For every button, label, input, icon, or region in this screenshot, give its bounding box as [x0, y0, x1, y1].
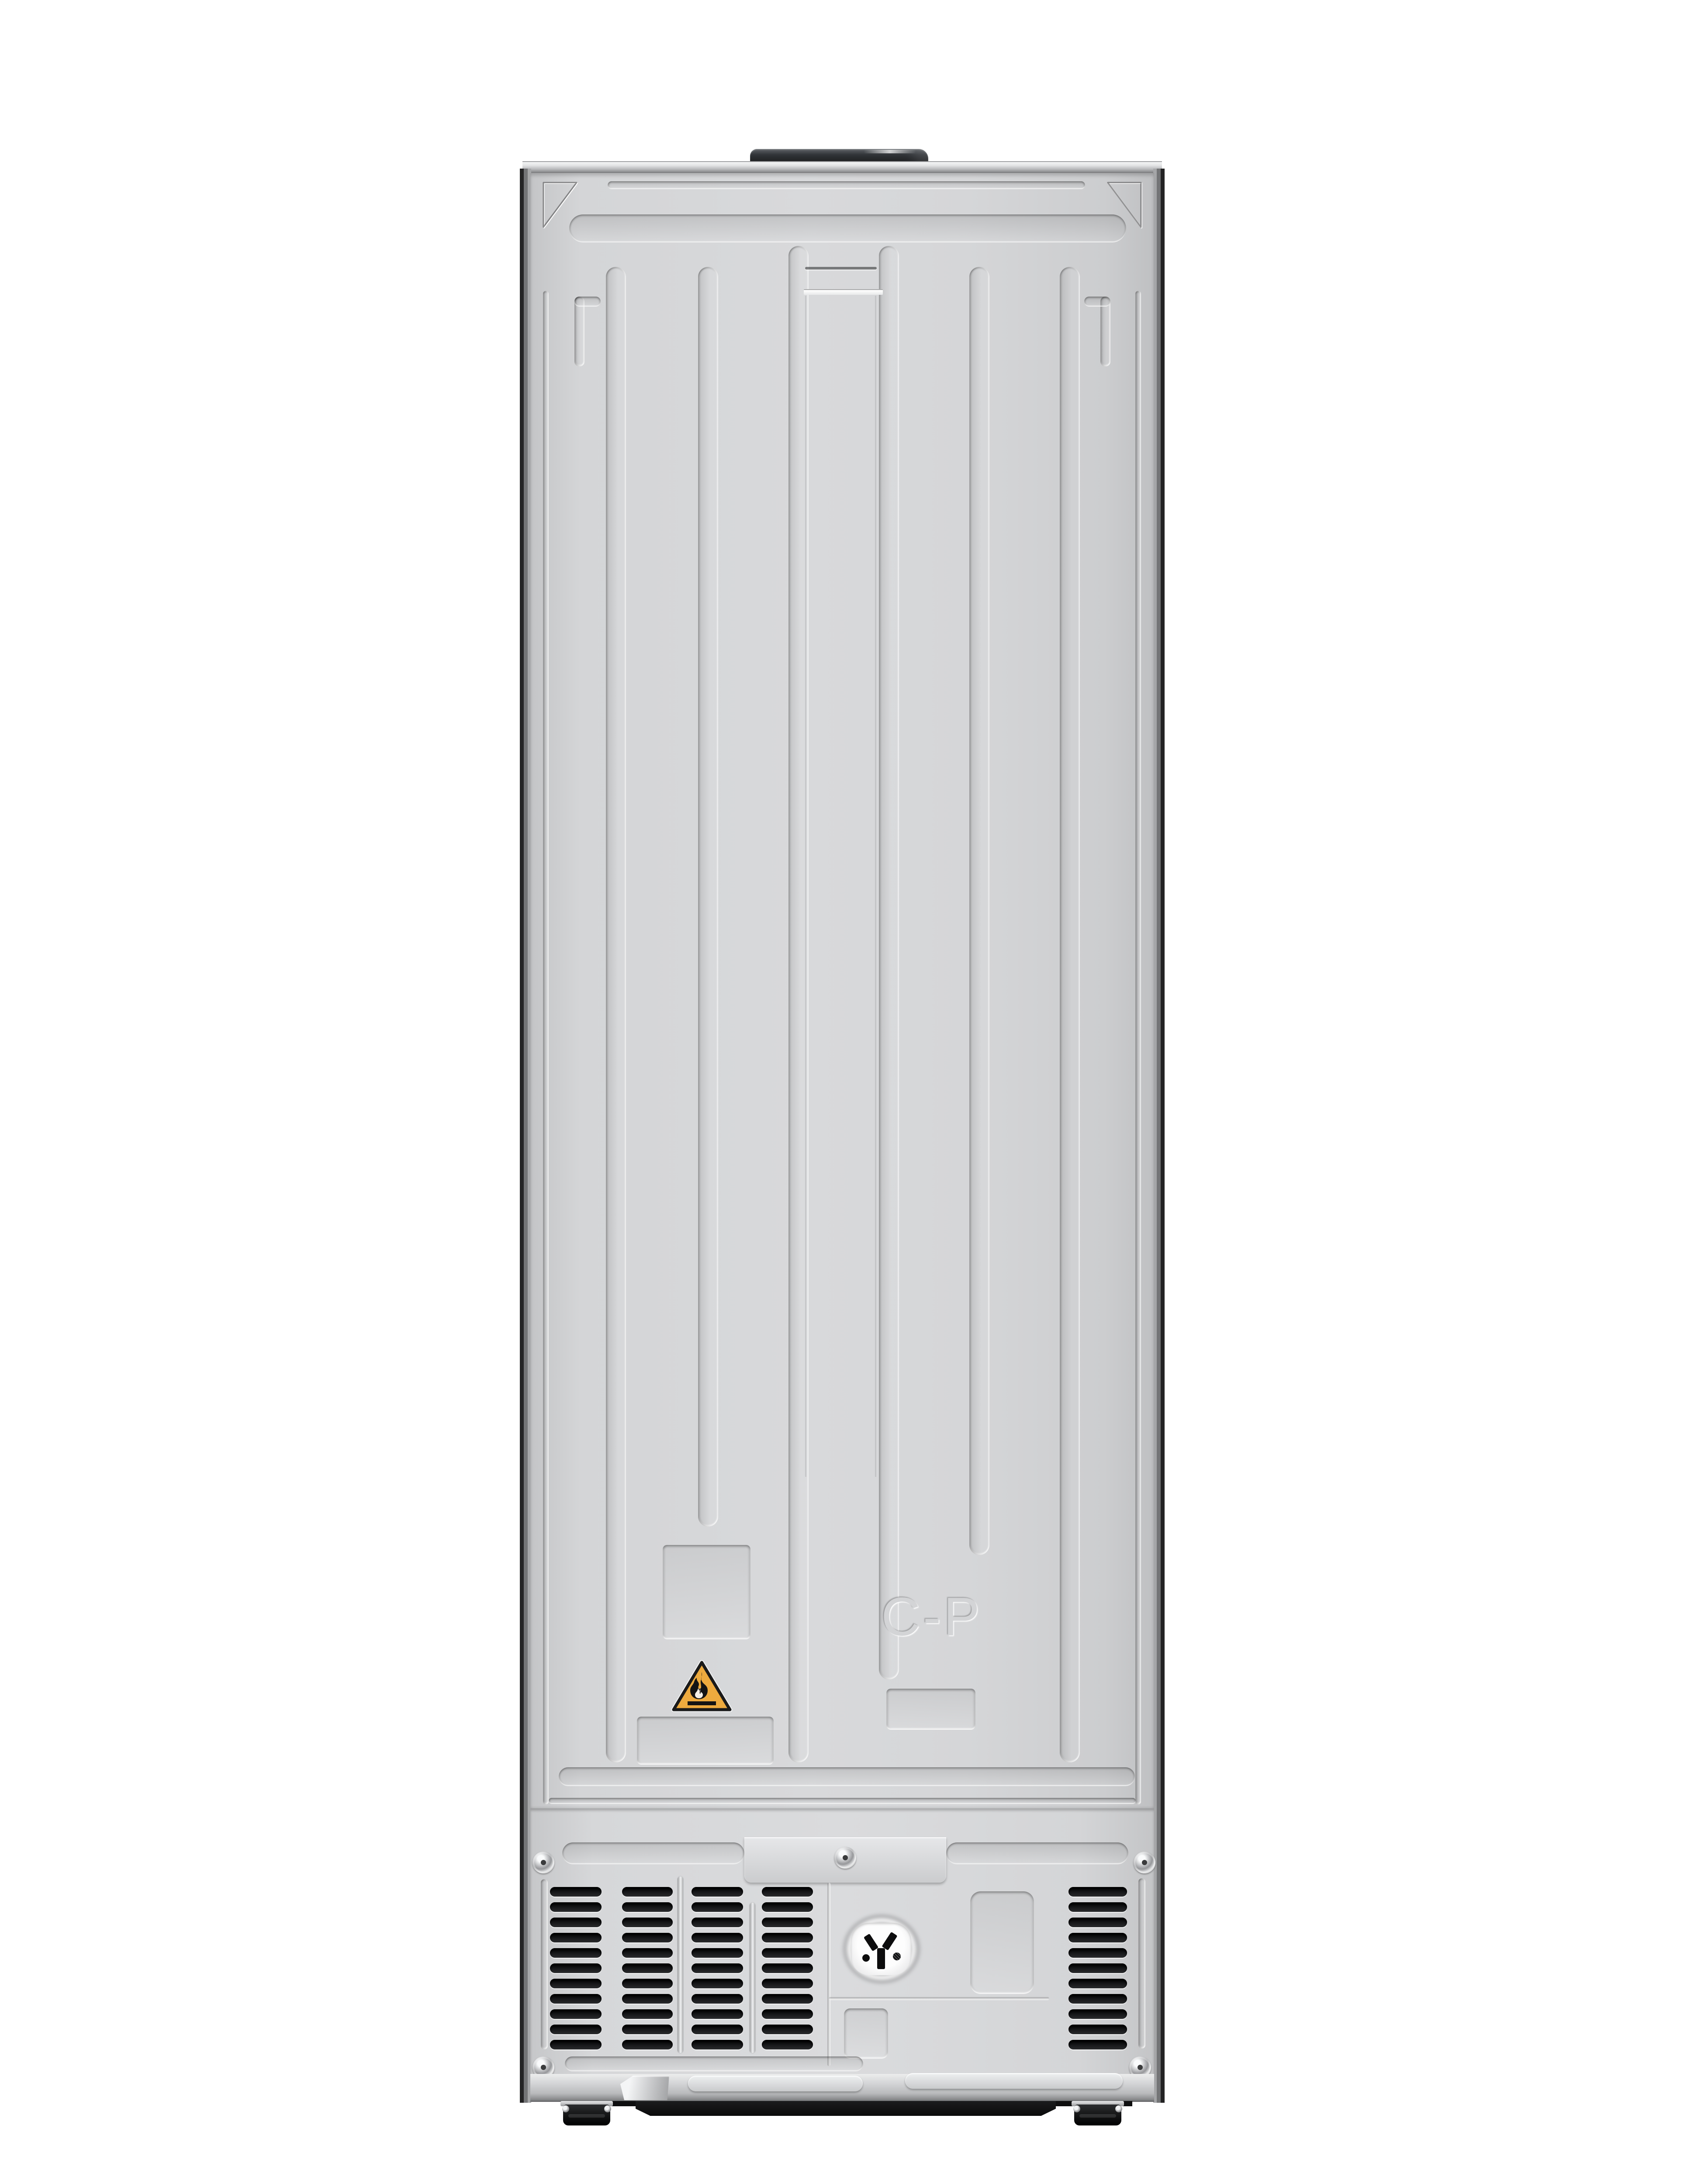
wheel-bolt-right: [604, 2105, 611, 2112]
hook-slot-left: [574, 297, 601, 366]
product-photo-canvas: C-P: [0, 0, 1684, 2184]
embossed-rib: [1060, 267, 1080, 1762]
vent-slot: [1068, 2040, 1127, 2049]
vent-slot: [550, 2009, 602, 2019]
vent-slot: [762, 2025, 813, 2034]
cover-screw-top-left: [533, 1852, 554, 1873]
bottom-small-emboss: [844, 2008, 888, 2059]
vent-slot: [692, 1902, 743, 1912]
vent-slot: [692, 2009, 743, 2019]
embossed-rib: [606, 267, 626, 1762]
embossed-rect-portrait: [663, 1545, 750, 1639]
vent-slot: [692, 1963, 743, 1973]
vent-slot: [762, 1963, 813, 1973]
rib-inner-line-left: [805, 296, 806, 1477]
center-horizontal-groove: [829, 1997, 1049, 2000]
vent-slot: [762, 1979, 813, 1988]
caster-wheel-left: [560, 2101, 613, 2125]
vent-slot: [622, 1963, 673, 1973]
embossed-rib: [969, 267, 989, 1555]
vent-slot: [762, 1948, 813, 1958]
left-side-edge: [520, 169, 531, 2103]
vent-slot: [550, 1979, 602, 1988]
strip-recess-left: [562, 1842, 744, 1864]
vent-slot: [1068, 1948, 1127, 1958]
model-emboss-text: C-P: [866, 1590, 997, 1647]
vent-slot: [622, 1994, 673, 2004]
vent-slot: [550, 1994, 602, 2004]
vent-slot: [622, 1979, 673, 1988]
center-vertical-groove: [827, 1883, 830, 2066]
vent-slot: [762, 2040, 813, 2049]
vent-slot: [762, 2009, 813, 2019]
strip-recess-right: [946, 1842, 1128, 1864]
vent-slot: [692, 1948, 743, 1958]
wheel-highlight: [568, 2114, 605, 2118]
vent-slot: [1068, 2025, 1127, 2034]
embossed-rib: [879, 246, 899, 1679]
base-black-strip: [636, 2101, 1056, 2116]
vent-slot: [692, 1994, 743, 2004]
vent-slot: [550, 2025, 602, 2034]
power-socket-pins-icon: [851, 1923, 911, 1975]
right-edge-crease: [1135, 291, 1141, 1804]
vent-slot: [692, 1979, 743, 1988]
vent-slot: [622, 2040, 673, 2049]
top-thin-channel: [608, 181, 1085, 189]
rail-pill-right: [905, 2073, 1123, 2089]
right-side-edge: [1153, 169, 1165, 2103]
vent-slot: [550, 1948, 602, 1958]
top-wide-channel: [569, 214, 1126, 242]
tall-emboss: [970, 1891, 1034, 1994]
vent-divider-1: [678, 1876, 683, 2053]
tab-screw: [834, 1847, 856, 1869]
vent-slot: [1068, 1979, 1127, 1988]
vent-slot: [550, 1933, 602, 1942]
back-panel: C-P: [530, 173, 1154, 1808]
vent-slot: [1068, 1933, 1127, 1942]
flammable-warning-icon: [671, 1660, 733, 1712]
vent-slot: [1068, 1963, 1127, 1973]
vent-slot: [692, 1933, 743, 1942]
cover-screw-top-right: [1134, 1852, 1155, 1873]
left-edge-crease: [543, 291, 549, 1804]
cover-crease-left: [541, 1879, 548, 2049]
vent-slot: [1068, 1902, 1127, 1912]
hook-slot-right: [1084, 297, 1110, 366]
vent-slot: [550, 1918, 602, 1927]
embossed-rib: [698, 267, 718, 1527]
vent-slot: [550, 1963, 602, 1973]
vent-slot: [1068, 1887, 1127, 1897]
rib-bridge-bevel: [804, 289, 883, 295]
vent-slot: [692, 2040, 743, 2049]
wheel-bolt-right: [1115, 2105, 1122, 2112]
vent-slot: [692, 2025, 743, 2034]
caster-wheel-right: [1072, 2101, 1124, 2125]
vent-slot: [622, 2025, 673, 2034]
vent-slot: [762, 1902, 813, 1912]
vent-slot: [622, 1918, 673, 1927]
wheel-highlight: [1079, 2114, 1116, 2118]
vent-divider-2: [750, 1903, 755, 2053]
vent-slot: [762, 1918, 813, 1927]
lower-wide-channel: [559, 1767, 1135, 1786]
vent-slot: [622, 1887, 673, 1897]
cover-bottom-channel: [565, 2056, 863, 2071]
vent-slot: [762, 1994, 813, 2004]
vent-slot: [692, 1887, 743, 1897]
vent-slot: [550, 2040, 602, 2049]
vent-slot: [622, 1902, 673, 1912]
vent-slot: [1068, 1918, 1127, 1927]
vent-slot: [622, 1948, 673, 1958]
vent-slot: [622, 1933, 673, 1942]
rail-pill-left: [688, 2076, 863, 2091]
wheel-bolt-left: [1073, 2105, 1080, 2112]
vent-slot: [550, 1902, 602, 1912]
vent-slot: [1068, 2009, 1127, 2019]
drain-bracket: [620, 2076, 669, 2100]
rib-inner-line-right: [875, 296, 876, 1477]
vent-slot: [762, 1887, 813, 1897]
vent-slot: [550, 1887, 602, 1897]
vent-slot: [622, 2009, 673, 2019]
top-edge-band: [522, 161, 1162, 173]
rib-bridge-groove: [805, 267, 877, 270]
vent-slot: [762, 1933, 813, 1942]
embossed-rect-large: [637, 1717, 774, 1765]
lower-thin-channel: [549, 1798, 1136, 1804]
embossed-rect-small: [886, 1689, 975, 1730]
vent-slot: [1068, 1994, 1127, 2004]
wheel-bolt-left: [562, 2105, 569, 2112]
cover-crease-right: [1138, 1878, 1145, 2049]
vent-slot: [692, 1918, 743, 1927]
